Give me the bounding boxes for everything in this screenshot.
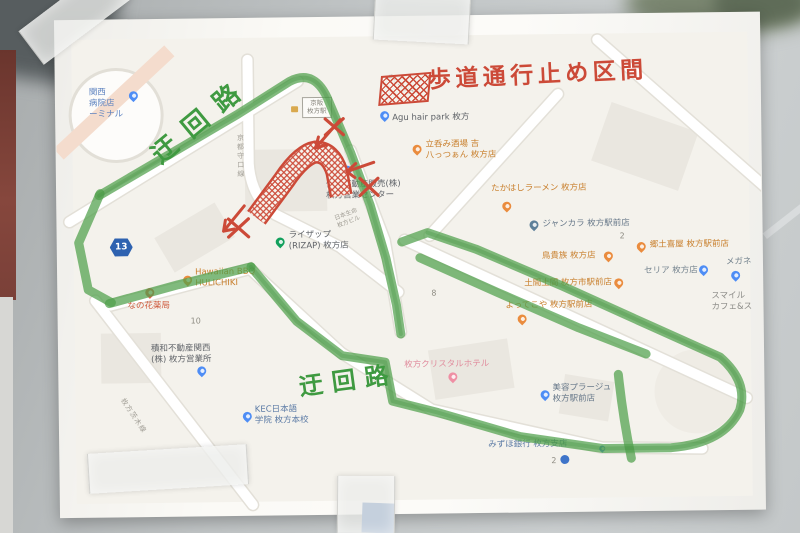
poi-label-seria: セリア 枚方店 <box>644 265 698 277</box>
block-number: 10 <box>191 316 201 325</box>
photo-of-posted-notice: 京阪 枚方駅 13 京都守口線 枚方茨木線 クリニック 10 8 2 関西病院店… <box>0 0 800 533</box>
map-pin-hattsuan-icon <box>411 143 424 156</box>
station-exit-number: 2 <box>551 456 556 465</box>
map-pin-takahashi-icon <box>500 200 513 213</box>
poi-label-sekiwa-fudosan: 積和不動産関西(株) 枚方営業所 <box>151 343 212 366</box>
map-pin-jankara-icon <box>528 218 541 231</box>
map-pin-megane-icon <box>729 269 742 282</box>
poi-label-torikizoku: 鳥貴族 枚方店 <box>542 251 596 263</box>
map-pin-yottekoya-icon <box>516 313 529 326</box>
tape-bottom-center <box>337 476 395 533</box>
map-pin-rizap-icon <box>274 236 287 249</box>
poi-label-smile-cafe: スマイルカフェ&ス <box>711 291 752 314</box>
poi-label-kec: KEC日本語学院 枚方本校 <box>255 404 309 427</box>
tape-top-center <box>373 0 471 44</box>
poi-label-mizuho: みずほ銀行 枚方支店 <box>488 439 567 451</box>
poi-label-crystal-hotel: 枚方クリスタルホテル <box>404 359 489 371</box>
map-pin-terminal-icon <box>127 89 140 102</box>
road-name-keito-moriguchi: 京都守口線 <box>235 134 246 179</box>
map-pin-hawaiian-icon <box>181 274 194 287</box>
block-number: 8 <box>431 289 436 298</box>
map-pin-small-icon <box>598 444 606 452</box>
map-pin-torikizoku-icon <box>602 250 615 263</box>
station-box: 京阪 枚方駅 <box>302 97 332 118</box>
poi-label-rizap: ライザップ(RIZAP) 枚方店 <box>289 230 349 253</box>
route-13-shield: 13 <box>110 238 133 256</box>
map-pin-seria-icon <box>697 263 710 276</box>
poi-label-megane: メガネ <box>726 257 752 268</box>
map-pin-crystal-hotel-icon <box>446 370 459 383</box>
poi-label-hattsuan: 立呑み酒場 吉八っつぁん 枚方店 <box>425 139 496 162</box>
block-number: 2 <box>620 231 625 240</box>
poi-label-plage: 美容プラージュ枚方駅前店 <box>552 382 611 405</box>
map-pin-kec-icon <box>241 410 254 423</box>
poi-label-terminal: 関西病院店ーミナル <box>89 87 123 121</box>
station-exit-icon <box>560 455 569 464</box>
poi-label-kyodo-izakaya: 郷土喜屋 枚方駅前店 <box>650 239 729 251</box>
poi-label-yottekoya: よってこや 枚方駅前店 <box>505 300 592 312</box>
poi-label-nanohana-pharmacy: なの花薬局 <box>127 301 170 313</box>
closure-legend-swatch-icon <box>378 72 431 106</box>
poi-label-jankara: ジャンカラ 枚方駅前店 <box>542 218 629 230</box>
poi-label-hawaiian-bbq: Hawaiian BBQHULICHIKI <box>195 267 255 290</box>
poi-label-agu-hair-park: Agu hair park 枚方 <box>392 112 469 124</box>
map-pin-sekiwa-icon <box>195 365 208 378</box>
map-pin-sumitomo-icon <box>341 164 354 177</box>
poi-label-domadoma: 土間土間 枚方市駅前店 <box>524 277 612 289</box>
bus-stop-icon <box>291 106 298 112</box>
map-pin-domadoma-icon <box>612 276 625 289</box>
map-pin-plage-icon <box>539 388 552 401</box>
poi-label-takahashi-ramen: たかはしラーメン 枚方店 <box>491 183 587 195</box>
map-pin-nanohana-icon <box>143 286 156 299</box>
poi-label-sumitomo-fudosan: 住友不動産販売(株)枚方営業センター <box>326 179 401 202</box>
poi-label-nissay-bldg: 日本生命枚方ビル <box>333 207 361 230</box>
road-name-hirakata-ibaraki: 枚方茨木線 <box>118 396 149 435</box>
map-pin-kyodo-icon <box>635 240 648 253</box>
map-pin-agu-icon <box>378 109 391 122</box>
